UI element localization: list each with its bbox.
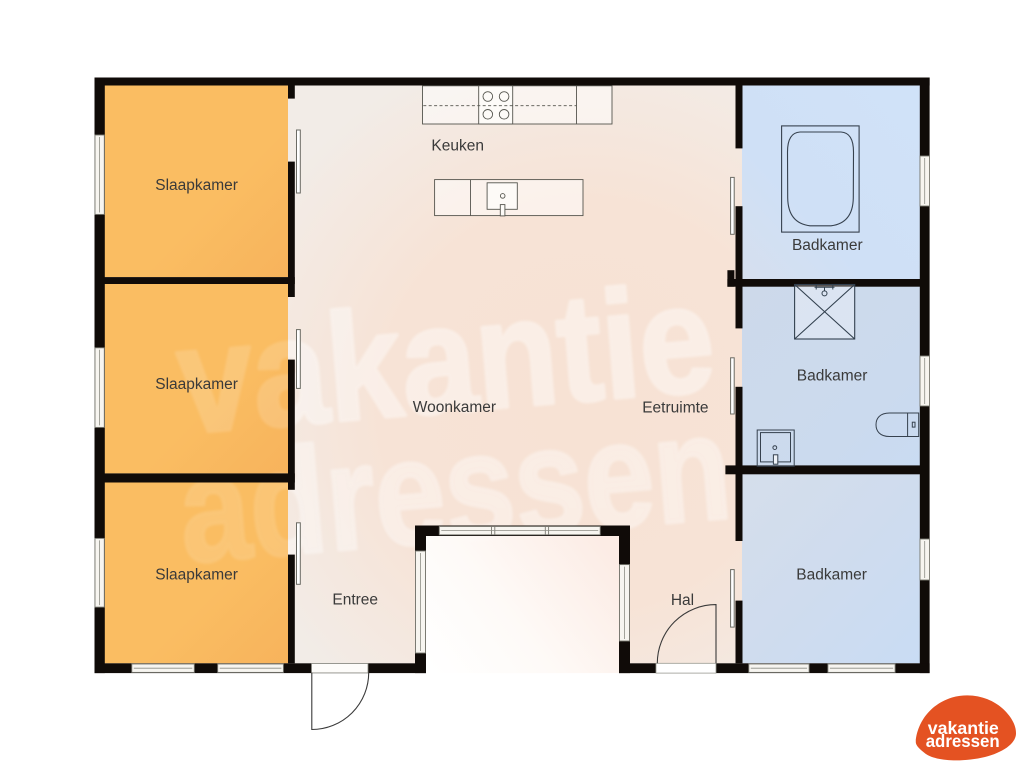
svg-text:Eetruimte: Eetruimte bbox=[642, 399, 708, 416]
svg-text:adressen: adressen bbox=[926, 731, 1000, 751]
svg-text:Keuken: Keuken bbox=[431, 138, 484, 155]
svg-text:Badkamer: Badkamer bbox=[797, 367, 868, 384]
svg-text:Entree: Entree bbox=[332, 591, 378, 608]
svg-text:Woonkamer: Woonkamer bbox=[413, 399, 496, 416]
svg-text:Slaapkamer: Slaapkamer bbox=[155, 567, 238, 584]
svg-text:Badkamer: Badkamer bbox=[796, 566, 867, 583]
svg-text:Badkamer: Badkamer bbox=[792, 237, 863, 254]
svg-text:Slaapkamer: Slaapkamer bbox=[155, 177, 238, 194]
svg-text:Hal: Hal bbox=[671, 592, 694, 609]
svg-text:Slaapkamer: Slaapkamer bbox=[155, 376, 238, 393]
